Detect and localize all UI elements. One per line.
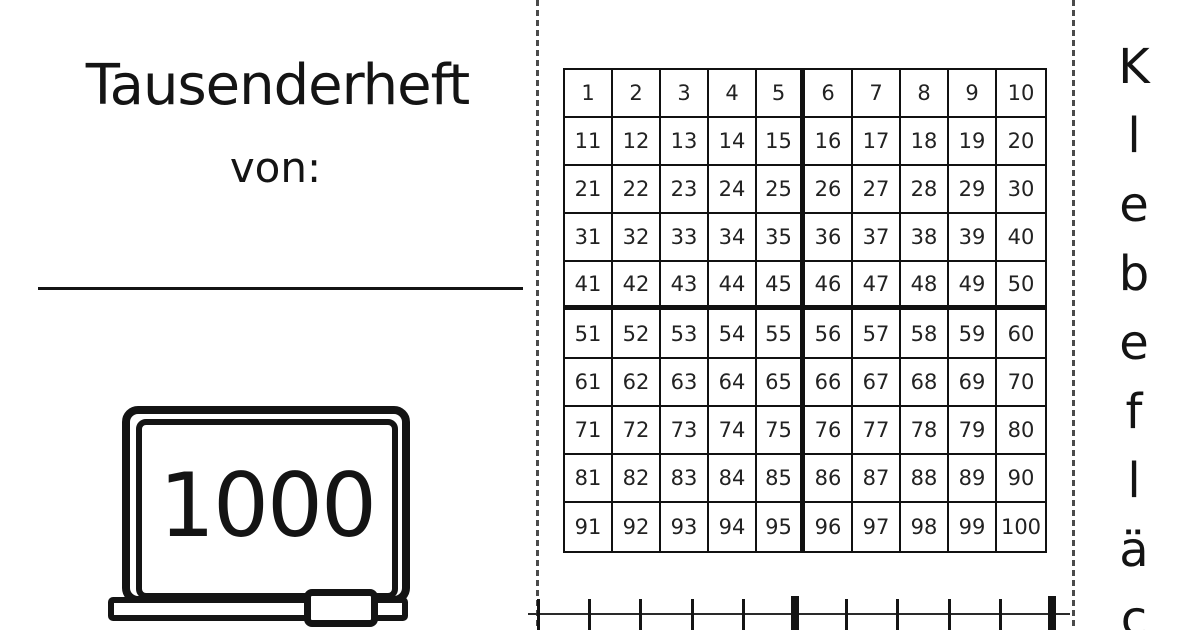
board-number: 1000 [159,462,375,550]
chart-cell: 28 [901,166,949,214]
chart-cell: 89 [949,455,997,503]
chart-cell: 1 [565,70,613,118]
chart-cell: 39 [949,214,997,262]
chart-cell: 20 [997,118,1045,166]
chart-cell: 65 [757,359,805,407]
chart-cell: 94 [709,503,757,551]
chart-cell: 70 [997,359,1045,407]
chart-cell: 61 [565,359,613,407]
chart-cell: 71 [565,407,613,455]
glue-letter: c [1098,585,1170,630]
chart-cell: 8 [901,70,949,118]
chart-cell: 74 [709,407,757,455]
number-line-tick [948,599,951,630]
chart-cell: 58 [901,310,949,358]
glue-area-label: Klebefläc [1098,33,1170,630]
chart-cell: 99 [949,503,997,551]
chart-cell: 40 [997,214,1045,262]
chart-cell: 9 [949,70,997,118]
chart-cell: 44 [709,262,757,310]
chart-cell: 85 [757,455,805,503]
chart-cell: 12 [613,118,661,166]
chart-cell: 17 [853,118,901,166]
number-line-tick [999,599,1002,630]
chart-cell: 60 [997,310,1045,358]
chart-cell: 52 [613,310,661,358]
marker-icon [304,589,378,627]
glue-letter: e [1098,171,1170,240]
chart-cell: 83 [661,455,709,503]
chart-cell: 51 [565,310,613,358]
chart-cell: 23 [661,166,709,214]
chart-cell: 62 [613,359,661,407]
glue-letter: K [1098,33,1170,102]
chart-cell: 88 [901,455,949,503]
chart-cell: 13 [661,118,709,166]
number-line-major-tick [791,596,799,630]
chart-cell: 32 [613,214,661,262]
cover-panel: Tausenderheft von: 1000 [0,0,537,630]
chart-cell: 3 [661,70,709,118]
chart-cell: 80 [997,407,1045,455]
chart-cell: 10 [997,70,1045,118]
glue-letter: b [1098,240,1170,309]
chart-cell: 37 [853,214,901,262]
chart-cell: 5 [757,70,805,118]
chart-cell: 96 [805,503,853,551]
chart-cell: 84 [709,455,757,503]
chart-cell: 14 [709,118,757,166]
chart-cell: 47 [853,262,901,310]
chart-cell: 26 [805,166,853,214]
chart-cell: 90 [997,455,1045,503]
number-line-tick [896,599,899,630]
chart-cell: 48 [901,262,949,310]
whiteboard-inner-frame: 1000 [136,419,398,599]
chart-cell: 81 [565,455,613,503]
chart-cell: 91 [565,503,613,551]
number-line-tick [639,599,642,630]
number-line-tick [691,599,694,630]
number-line-rule [528,613,1070,615]
number-line-major-tick [1048,596,1056,630]
chart-cell: 33 [661,214,709,262]
chart-cell: 21 [565,166,613,214]
chart-cell: 16 [805,118,853,166]
chart-cell: 30 [997,166,1045,214]
chart-cell: 49 [949,262,997,310]
chart-cell: 59 [949,310,997,358]
chart-cell: 35 [757,214,805,262]
chart-cell: 77 [853,407,901,455]
chart-cell: 43 [661,262,709,310]
chart-cell: 69 [949,359,997,407]
chart-cell: 78 [901,407,949,455]
chart-cell: 27 [853,166,901,214]
glue-letter: l [1098,447,1170,516]
chart-cell: 93 [661,503,709,551]
chart-cell: 100 [997,503,1045,551]
glue-letter: l [1098,102,1170,171]
page-title: Tausenderheft [0,58,537,114]
chart-cell: 64 [709,359,757,407]
chart-cell: 56 [805,310,853,358]
chart-cell: 34 [709,214,757,262]
chart-cell: 66 [805,359,853,407]
chart-cell: 22 [613,166,661,214]
from-label: von: [0,147,537,189]
chart-cell: 63 [661,359,709,407]
worksheet-page: Tausenderheft von: 1000 1234567891011121… [0,0,1200,630]
chart-cell: 19 [949,118,997,166]
chart-cell: 76 [805,407,853,455]
chart-cell: 72 [613,407,661,455]
chart-cell: 15 [757,118,805,166]
chart-cell: 46 [805,262,853,310]
chart-cell: 38 [901,214,949,262]
chart-cell: 55 [757,310,805,358]
cut-line-left [536,0,539,630]
chart-cell: 50 [997,262,1045,310]
chart-cell: 2 [613,70,661,118]
number-line-tick [537,599,540,630]
chart-cell: 67 [853,359,901,407]
name-write-line [38,287,523,290]
chart-cell: 6 [805,70,853,118]
chart-cell: 92 [613,503,661,551]
chart-cell: 68 [901,359,949,407]
chart-cell: 98 [901,503,949,551]
chart-cell: 36 [805,214,853,262]
chart-cell: 45 [757,262,805,310]
chart-cell: 11 [565,118,613,166]
chart-cell: 75 [757,407,805,455]
chart-cell: 79 [949,407,997,455]
chart-cell: 24 [709,166,757,214]
chart-cell: 41 [565,262,613,310]
chart-cell: 53 [661,310,709,358]
number-line-tick [845,599,848,630]
chart-cell: 57 [853,310,901,358]
chart-cell: 25 [757,166,805,214]
chart-cell: 86 [805,455,853,503]
chart-cell: 87 [853,455,901,503]
chart-cell: 97 [853,503,901,551]
chart-cell: 42 [613,262,661,310]
chart-cell: 18 [901,118,949,166]
chart-cell: 29 [949,166,997,214]
chart-cell: 82 [613,455,661,503]
chart-cell: 31 [565,214,613,262]
glue-letter: e [1098,309,1170,378]
chart-cell: 95 [757,503,805,551]
chart-cell: 54 [709,310,757,358]
chart-cell: 73 [661,407,709,455]
number-line-tick [588,599,591,630]
chart-cell: 4 [709,70,757,118]
number-line-tick [742,599,745,630]
hundred-chart: 1234567891011121314151617181920212223242… [563,68,1047,553]
cut-line-right [1072,0,1075,630]
glue-letter: f [1098,378,1170,447]
glue-letter: ä [1098,516,1170,585]
chart-cell: 7 [853,70,901,118]
